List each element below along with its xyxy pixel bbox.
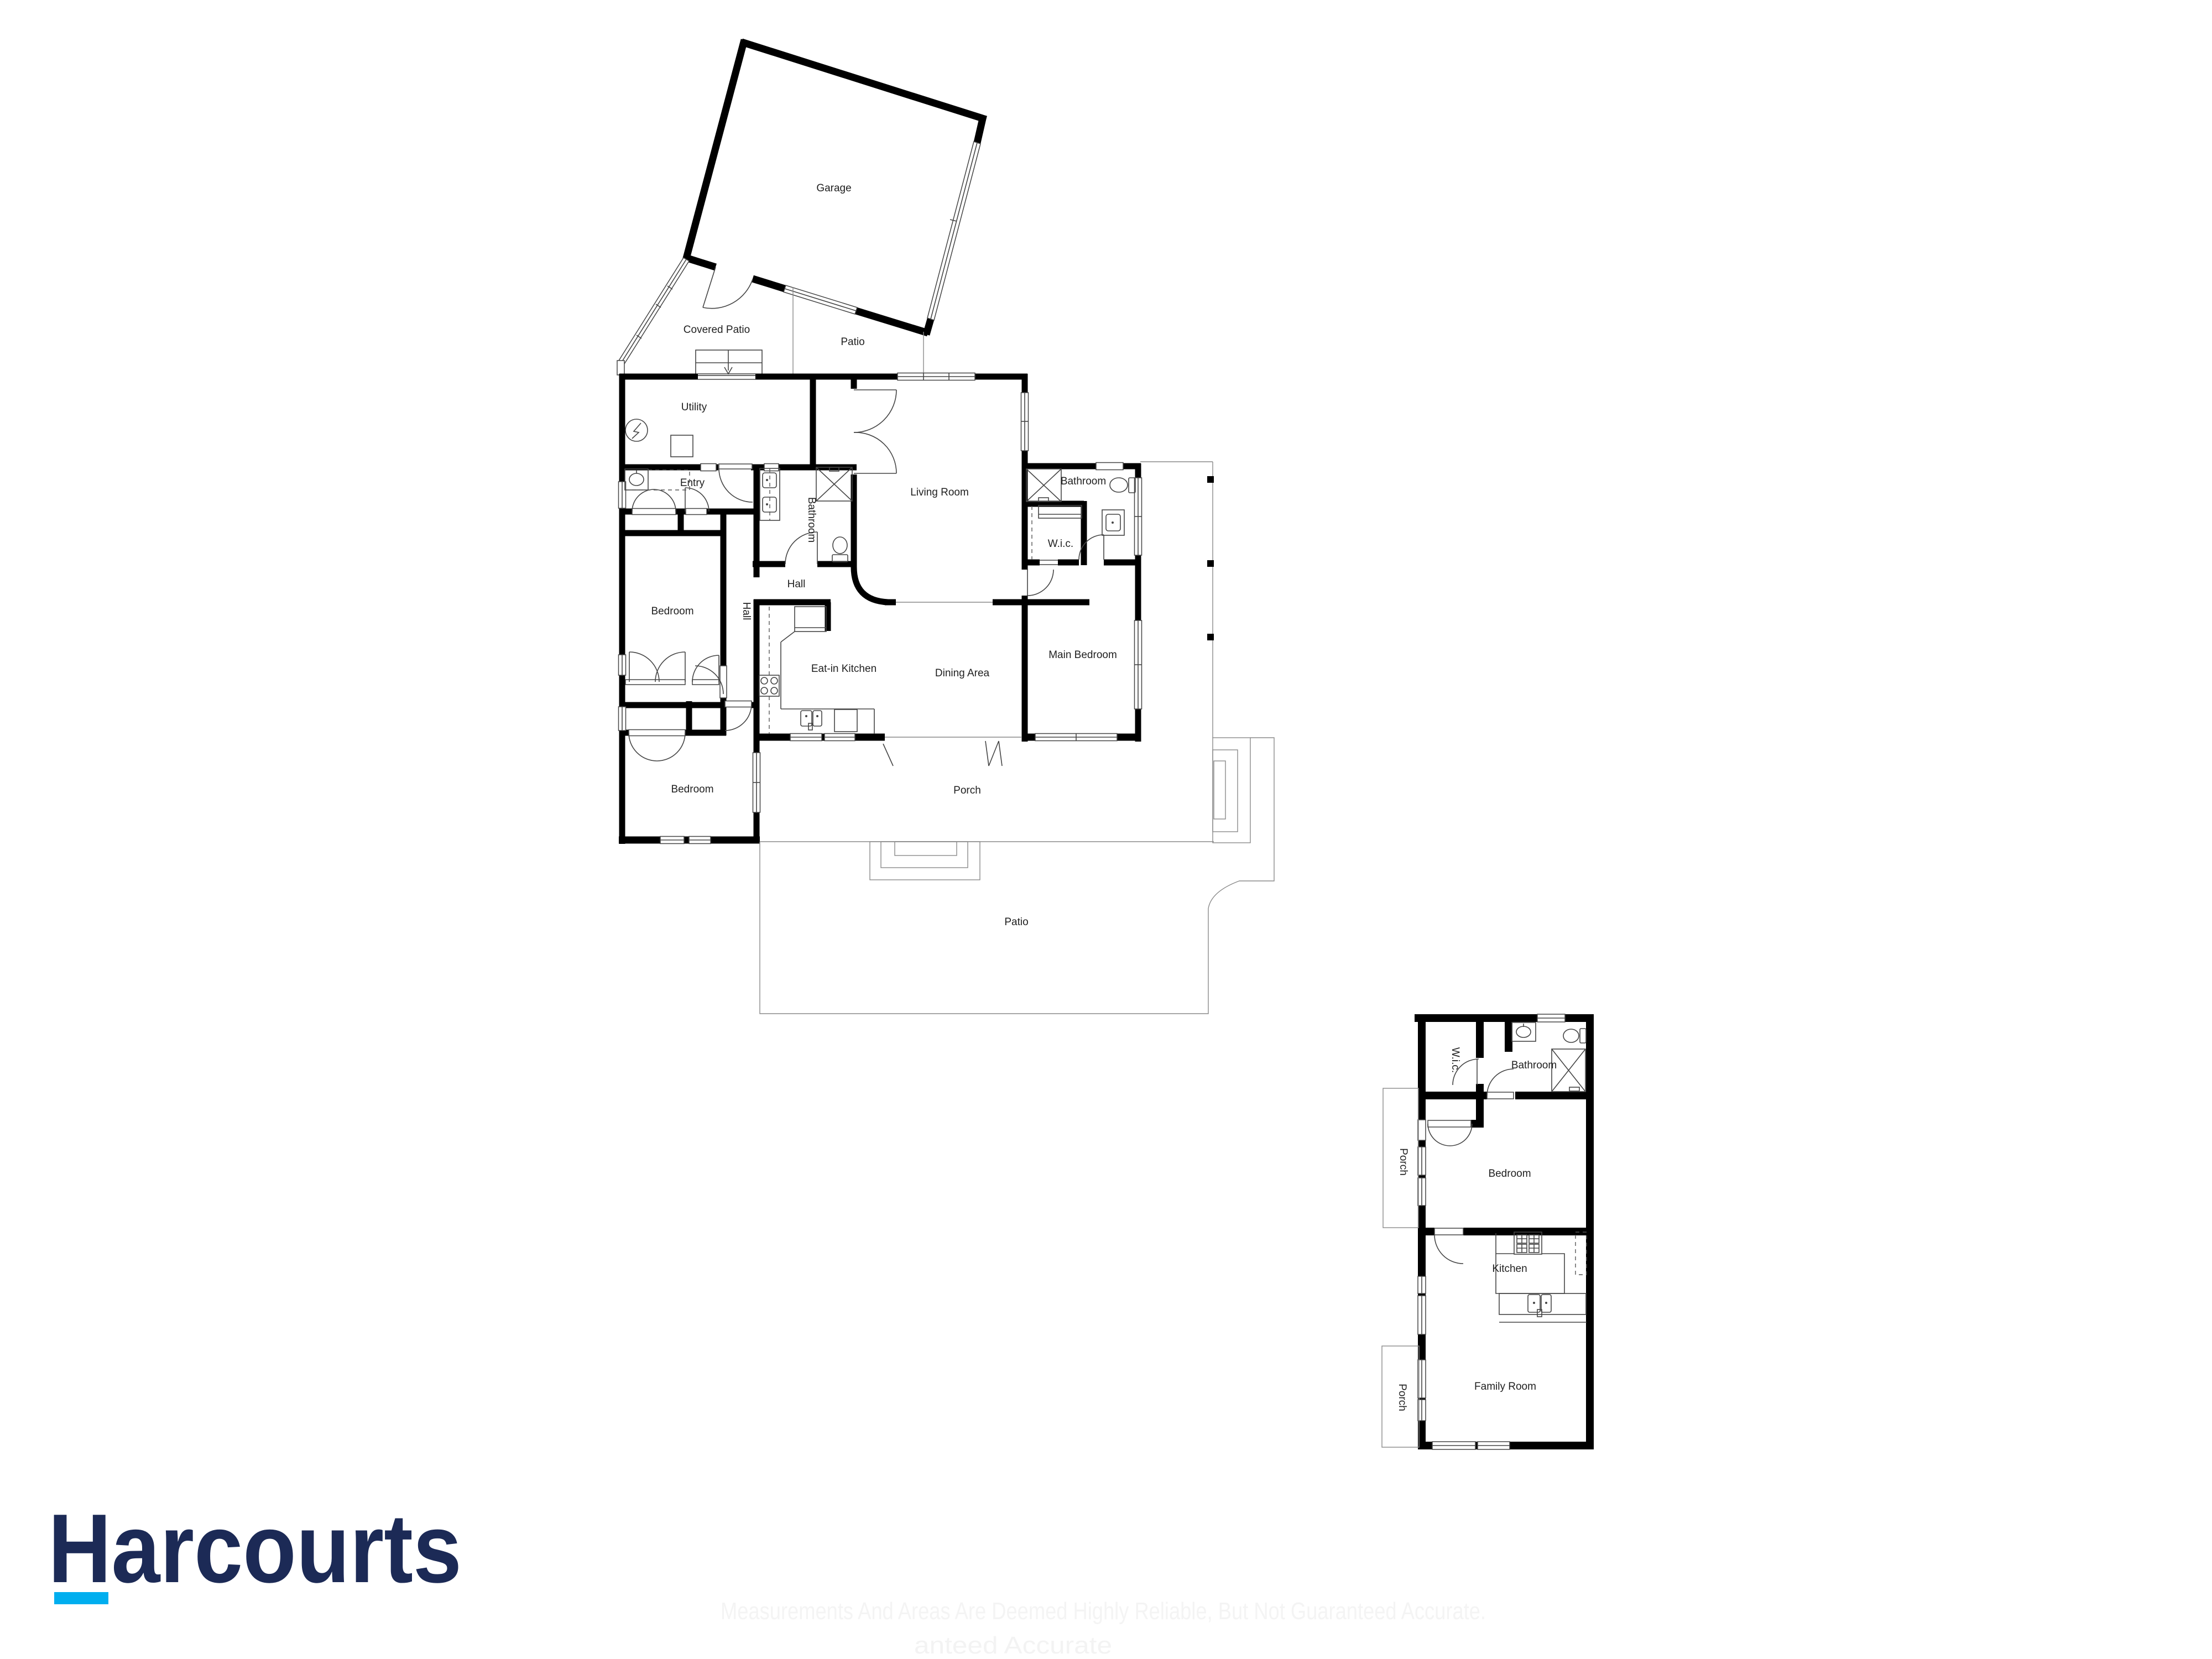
svg-text:Bedroom: Bedroom	[651, 606, 693, 617]
svg-text:Patio: Patio	[1004, 916, 1028, 928]
svg-text:Eat-in Kitchen: Eat-in Kitchen	[811, 663, 877, 675]
svg-text:Family Room: Family Room	[1474, 1381, 1536, 1392]
svg-text:Dining Area: Dining Area	[935, 667, 990, 679]
svg-text:Utility: Utility	[681, 401, 707, 413]
svg-text:Main Bedroom: Main Bedroom	[1048, 649, 1117, 661]
svg-text:Harcourts: Harcourts	[48, 1494, 462, 1603]
svg-text:Porch: Porch	[1397, 1148, 1409, 1176]
svg-text:Measurements And Areas Are Dee: Measurements And Areas Are Deemed Highly…	[721, 1598, 1486, 1625]
svg-text:Hall: Hall	[740, 602, 752, 620]
svg-text:Bedroom: Bedroom	[671, 784, 713, 795]
svg-text:Entry: Entry	[680, 477, 705, 489]
svg-text:Kitchen: Kitchen	[1492, 1263, 1527, 1275]
svg-text:Garage: Garage	[816, 182, 851, 194]
svg-text:Covered Patio: Covered Patio	[684, 324, 750, 336]
svg-text:Patio: Patio	[841, 336, 864, 348]
svg-text:anteed Accurate: anteed Accurate	[914, 1632, 1112, 1659]
svg-text:Bedroom: Bedroom	[1488, 1168, 1531, 1180]
svg-text:Bathroom: Bathroom	[806, 497, 817, 542]
svg-text:Hall: Hall	[787, 578, 806, 590]
svg-text:Bathroom: Bathroom	[1511, 1060, 1557, 1071]
svg-text:Porch: Porch	[1396, 1384, 1408, 1411]
svg-text:Porch: Porch	[953, 785, 981, 796]
svg-text:W.i.c.: W.i.c.	[1449, 1047, 1461, 1073]
svg-text:Bathroom: Bathroom	[1061, 476, 1106, 487]
svg-text:W.i.c.: W.i.c.	[1048, 538, 1073, 550]
svg-text:Living Room: Living Room	[910, 487, 969, 498]
